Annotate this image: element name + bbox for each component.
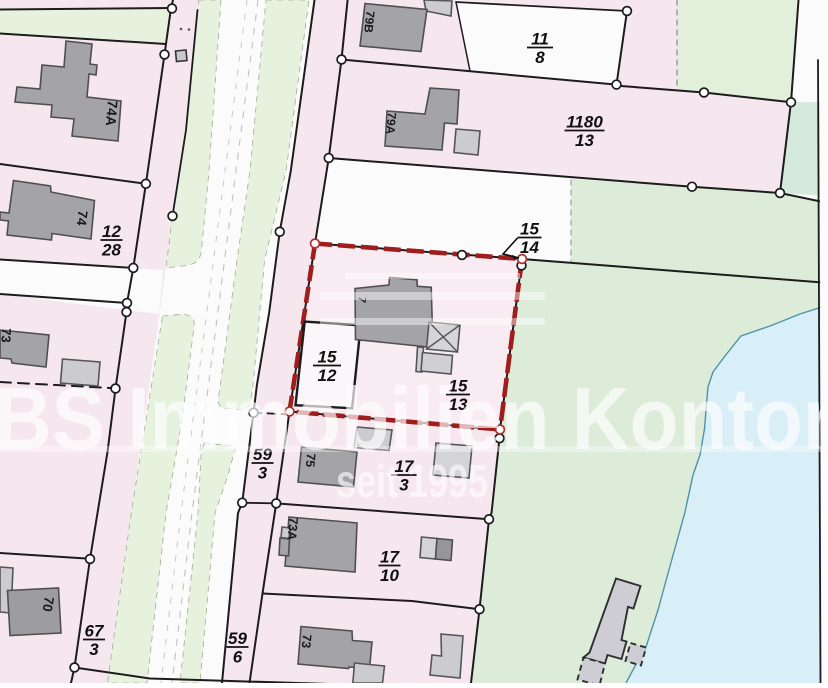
svg-text:67: 67 (85, 622, 105, 641)
svg-text:79A: 79A (383, 112, 399, 135)
svg-text:15: 15 (318, 348, 337, 367)
svg-text:seit 1995: seit 1995 (336, 455, 488, 507)
svg-text:79B: 79B (361, 10, 377, 34)
svg-text:59: 59 (228, 629, 247, 648)
svg-text:73: 73 (299, 634, 314, 649)
svg-text:14: 14 (520, 238, 539, 257)
svg-text:10: 10 (380, 566, 399, 585)
svg-text:6: 6 (233, 648, 243, 667)
svg-text:12: 12 (102, 222, 121, 241)
svg-text:70: 70 (39, 595, 56, 612)
svg-text:3: 3 (89, 640, 99, 659)
svg-text:1180: 1180 (566, 113, 603, 132)
svg-text:73A: 73A (285, 517, 301, 541)
svg-text:11: 11 (531, 30, 549, 49)
svg-text:74A: 74A (103, 100, 121, 127)
svg-text:73: 73 (0, 328, 14, 343)
svg-text:17: 17 (380, 548, 400, 567)
svg-text:74: 74 (74, 210, 91, 227)
svg-text:13: 13 (575, 131, 594, 150)
svg-text:BS Immobilien Kontor: BS Immobilien Kontor (0, 369, 828, 468)
svg-text:15: 15 (520, 220, 539, 239)
svg-text:28: 28 (101, 241, 121, 260)
svg-text:8: 8 (535, 48, 545, 67)
